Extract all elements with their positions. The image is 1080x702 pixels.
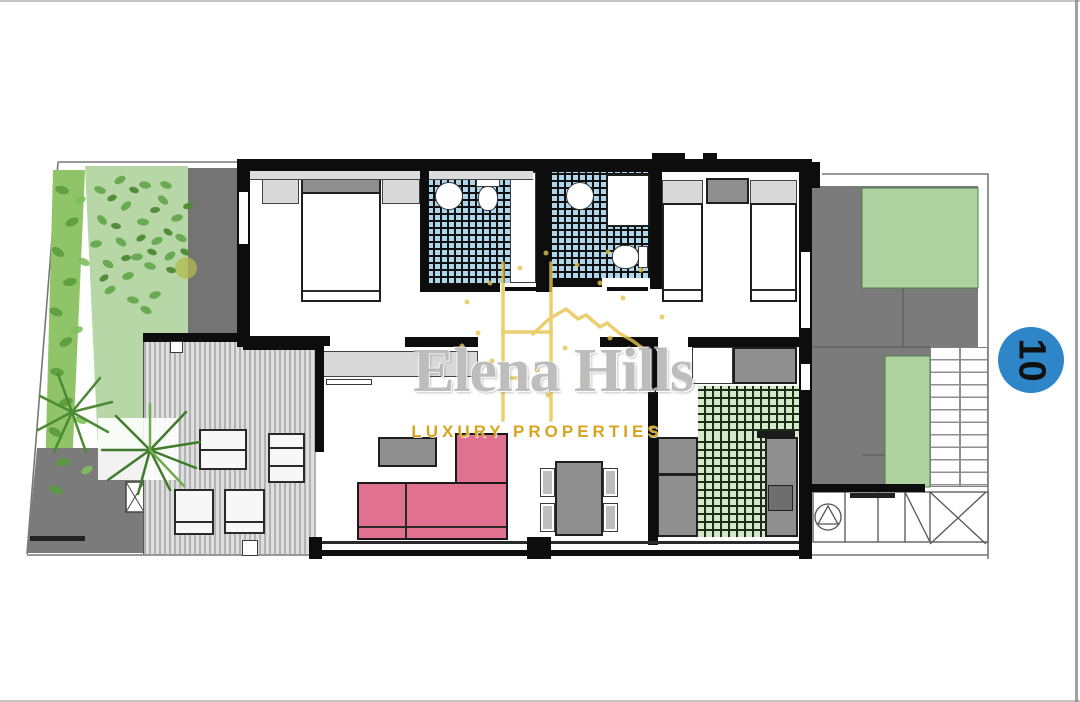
watermark-subtitle: LUXURY PROPERTIES (392, 422, 682, 442)
tree-icon (89, 174, 197, 316)
watermark-title: Elena Hills (398, 336, 708, 407)
palm-icon (102, 404, 200, 494)
floor-plan-page: Elena Hills LUXURY PROPERTIES 10 (0, 0, 1080, 702)
plot-number-badge: 10 (998, 327, 1064, 393)
plot-number: 10 (1010, 338, 1053, 382)
